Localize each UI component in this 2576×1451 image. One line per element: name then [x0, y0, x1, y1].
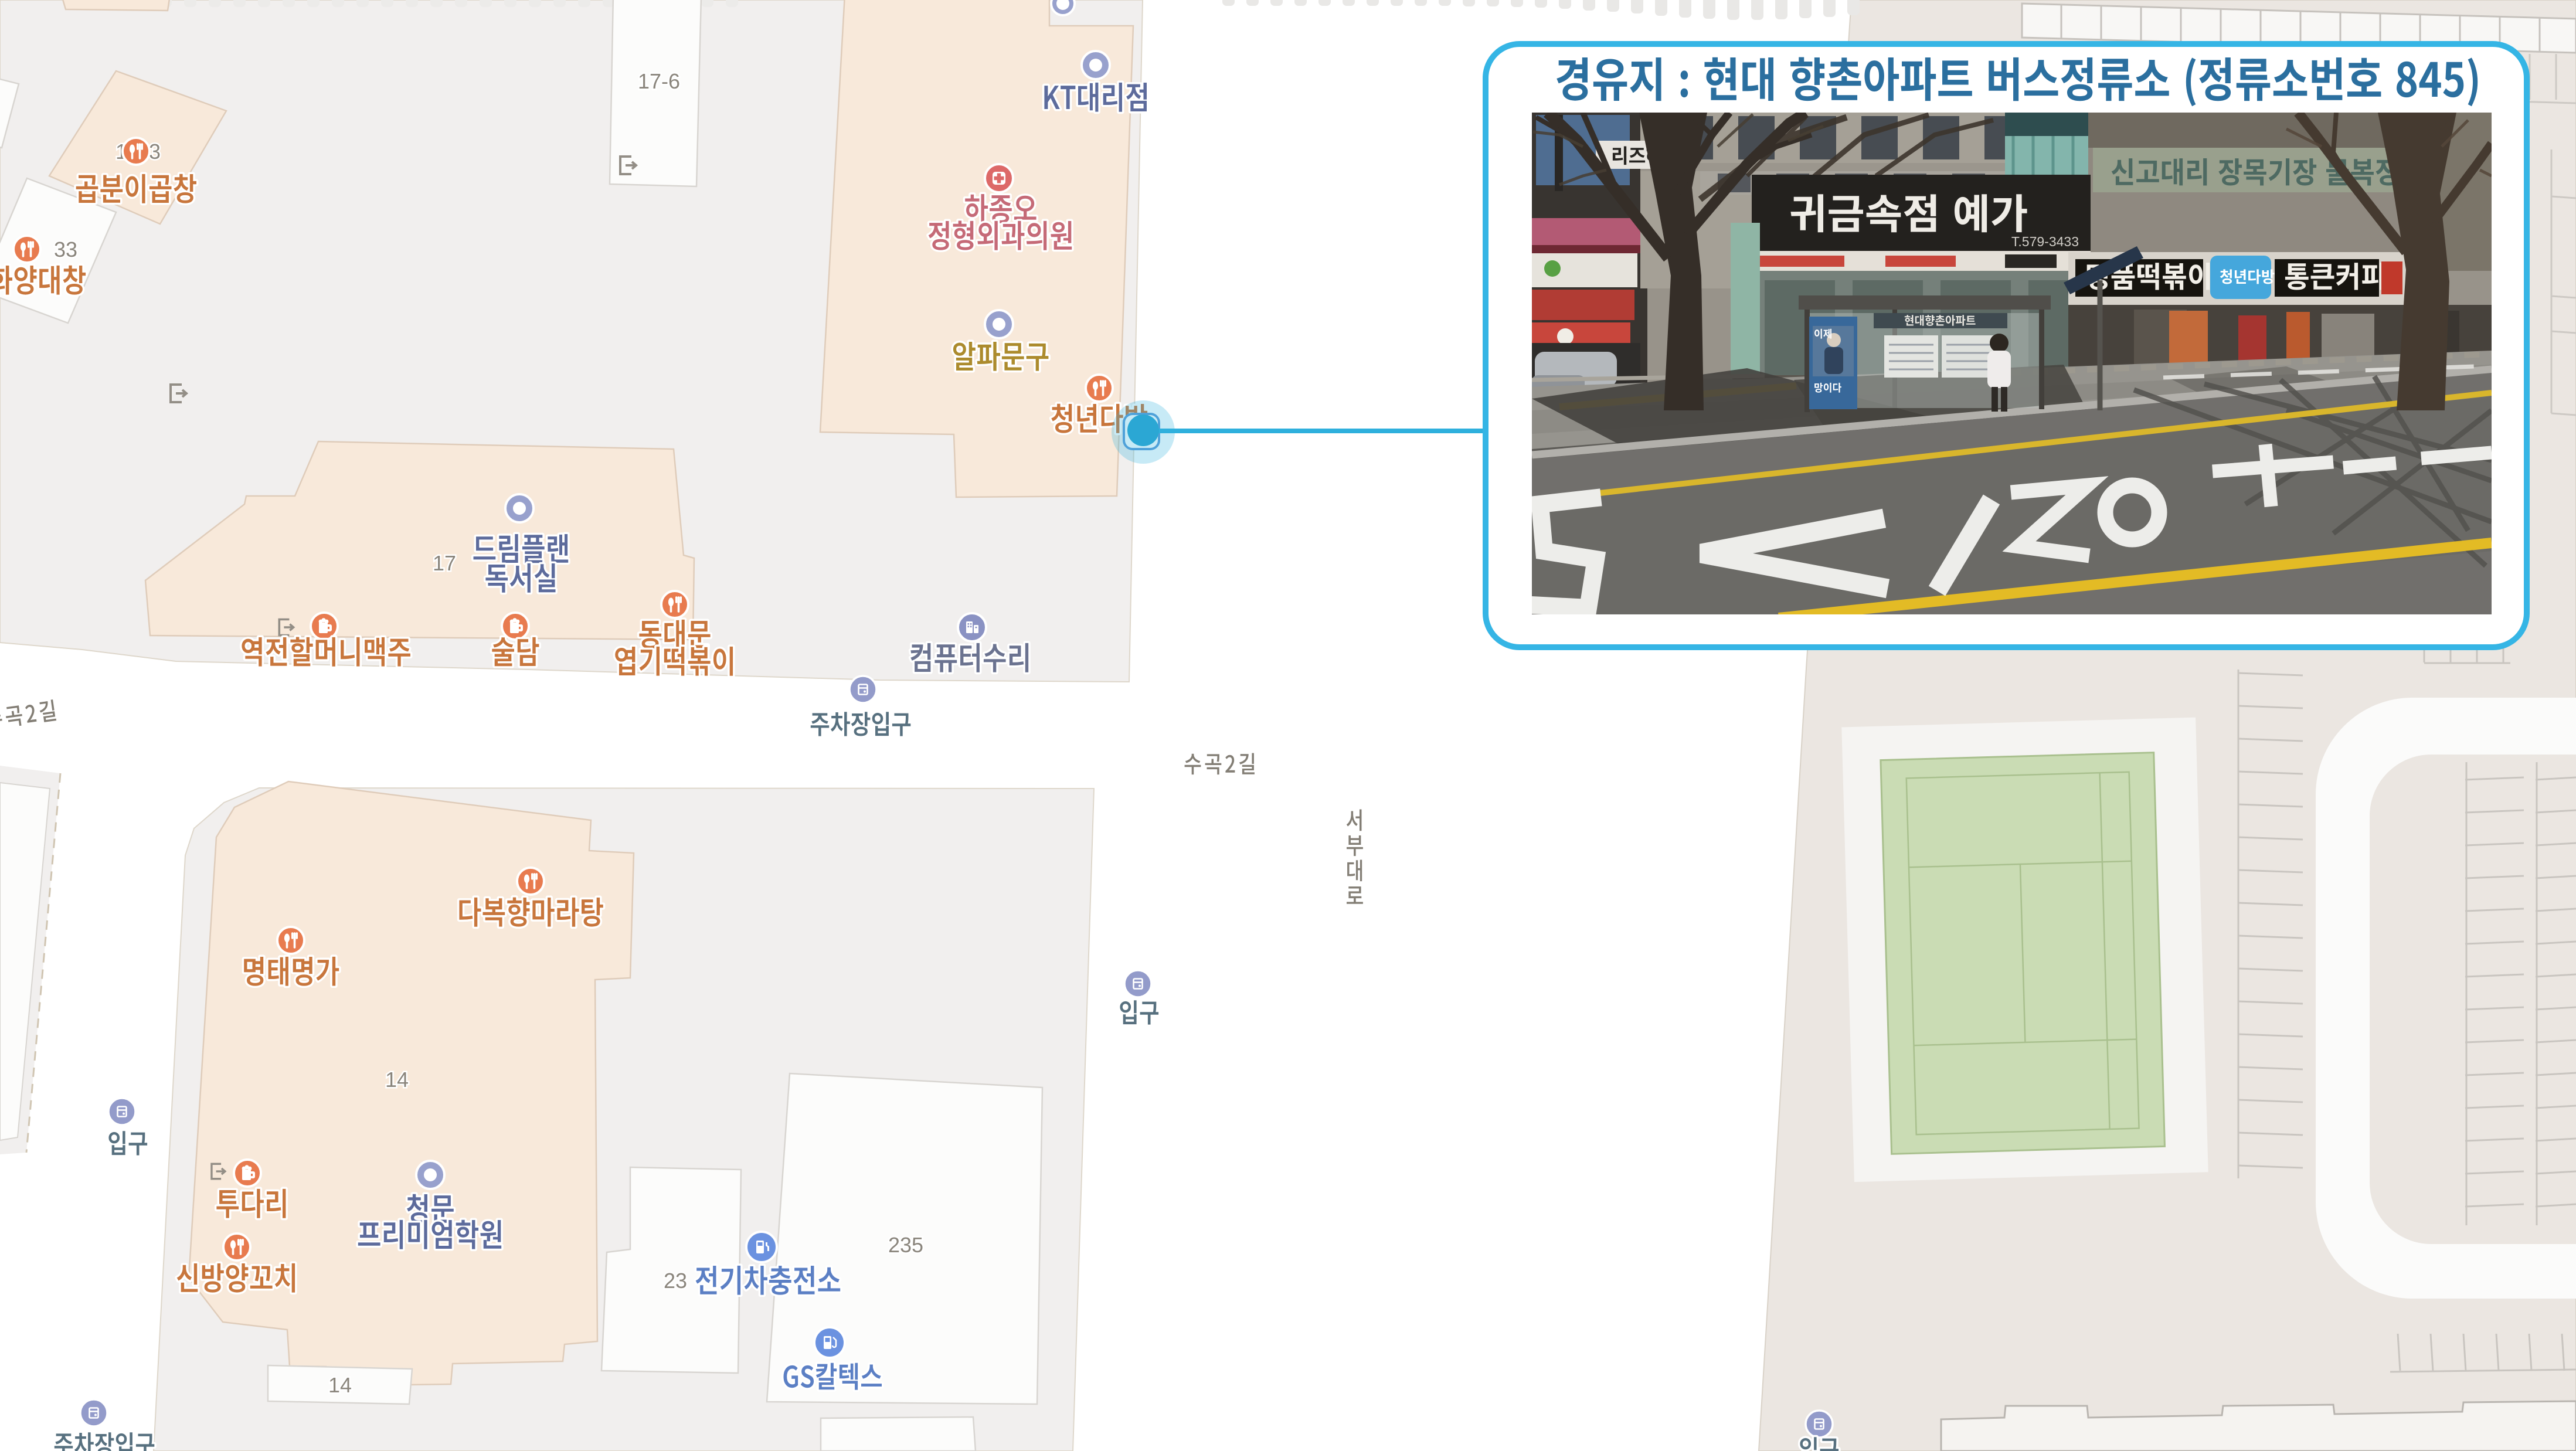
svg-text:17: 17 [433, 551, 456, 575]
svg-text:235: 235 [888, 1233, 923, 1257]
svg-text:23: 23 [664, 1269, 687, 1293]
svg-text:T.579-3433: T.579-3433 [2011, 234, 2079, 249]
svg-text:33: 33 [54, 237, 77, 261]
svg-text:14: 14 [328, 1373, 352, 1397]
svg-text:17-6: 17-6 [638, 69, 680, 93]
svg-text:14: 14 [385, 1068, 409, 1092]
